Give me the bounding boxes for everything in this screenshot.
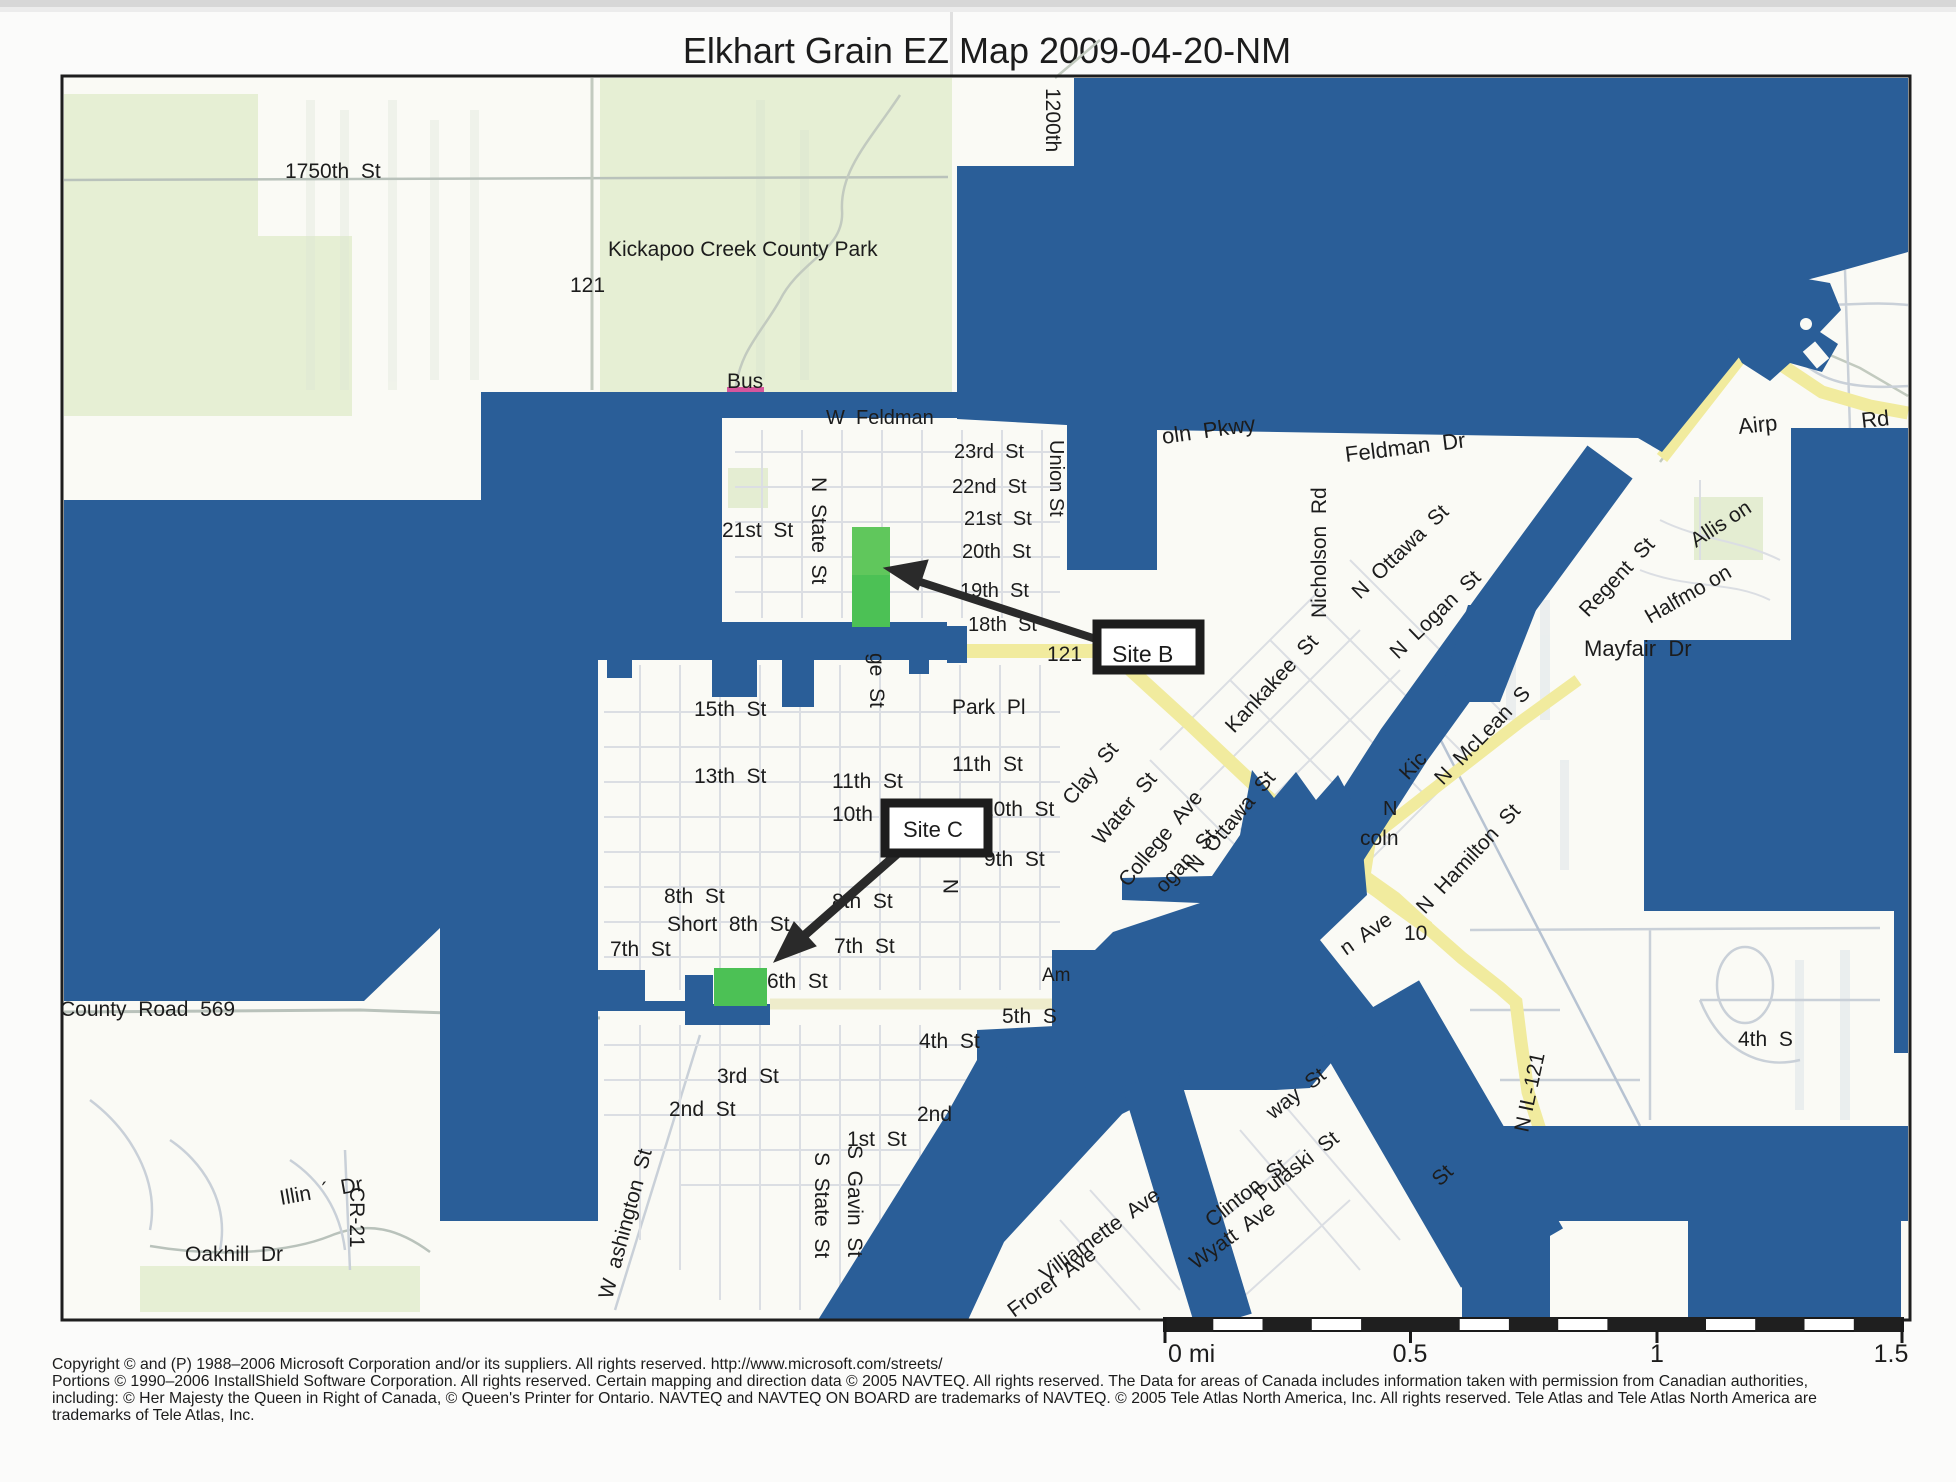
svg-text:Elkhart Grain EZ Map 2009-04-2: Elkhart Grain EZ Map 2009-04-20-NM [683,30,1291,71]
svg-text:9th St: 9th St [984,848,1045,871]
svg-text:S State St: S State St [810,1152,833,1258]
svg-text:N State St: N State St [807,477,830,585]
svg-text:7th St: 7th St [610,938,671,961]
svg-text:2nd St: 2nd St [669,1098,736,1121]
svg-text:1750th St: 1750th St [285,160,381,183]
svg-text:County Road 569: County Road 569 [60,998,235,1021]
svg-text:S Gavin St: S Gavin St [843,1145,866,1257]
svg-text:Portions © 1990–2006 InstallSh: Portions © 1990–2006 InstallShield Softw… [52,1373,1808,1390]
svg-text:2nd: 2nd [917,1103,952,1126]
svg-text:3rd St: 3rd St [717,1065,779,1088]
svg-text:W Feldman: W Feldman [826,407,934,429]
svg-text:Am: Am [1042,965,1071,986]
svg-text:Union St: Union St [1045,440,1067,517]
svg-text:13th St: 13th St [694,765,767,788]
svg-text:10: 10 [1404,922,1427,945]
svg-text:CR-21: CR-21 [345,1187,368,1248]
svg-text:121: 121 [1047,643,1082,666]
svg-text:Kickapoo Creek County Park: Kickapoo Creek County Park [608,238,878,261]
svg-text:N: N [1383,798,1397,820]
svg-text:23rd St: 23rd St [954,441,1024,463]
svg-text:Site B: Site B [1112,641,1173,667]
svg-text:Site C: Site C [903,817,963,842]
svg-text:Nicholson Rd: Nicholson Rd [1308,487,1331,618]
svg-text:0.5: 0.5 [1393,1340,1428,1368]
svg-text:ge St: ge St [865,653,888,708]
svg-text:1.5: 1.5 [1874,1340,1909,1368]
svg-text:11th St: 11th St [832,770,903,793]
svg-text:15th St: 15th St [694,698,767,721]
svg-text:Park Pl: Park Pl [952,696,1026,719]
svg-text:6th St: 6th St [767,970,828,993]
svg-text:Short 8th St: Short 8th St [667,913,790,936]
svg-text:Mayfair Dr: Mayfair Dr [1584,636,1692,661]
svg-text:coln: coln [1360,827,1399,850]
svg-text:trademarks of Tele Atlas, Inc.: trademarks of Tele Atlas, Inc. [52,1407,255,1424]
svg-text:121: 121 [570,274,605,297]
svg-text:Rd: Rd [1860,405,1891,433]
svg-text:Oakhill Dr: Oakhill Dr [185,1243,283,1266]
svg-text:including: © Her Majesty the Q: including: © Her Majesty the Queen in Ri… [52,1390,1817,1407]
svg-text:11th St: 11th St [952,753,1023,776]
svg-text:22nd St: 22nd St [952,476,1027,498]
svg-text:1200th: 1200th [1041,88,1064,152]
svg-text:10th St: 10th St [982,798,1055,821]
svg-text:21st St: 21st St [722,519,793,542]
svg-text:8th St: 8th St [664,885,725,908]
svg-text:Airp: Airp [1737,410,1779,439]
svg-text:4th S: 4th S [1738,1028,1793,1051]
svg-text:5th S: 5th S [1002,1005,1057,1028]
svg-text:Copyright © and (P) 1988–2006: Copyright © and (P) 1988–2006 Microsoft … [52,1356,943,1373]
svg-text:10th: 10th [832,803,873,826]
svg-text:4th St: 4th St [919,1030,980,1053]
svg-text:21st St: 21st St [964,508,1032,530]
svg-text:Bus: Bus [727,370,763,393]
svg-text:7th St: 7th St [834,935,895,958]
svg-text:0 mi: 0 mi [1168,1340,1215,1368]
svg-text:20th St: 20th St [962,541,1031,563]
svg-text:1: 1 [1650,1340,1664,1368]
